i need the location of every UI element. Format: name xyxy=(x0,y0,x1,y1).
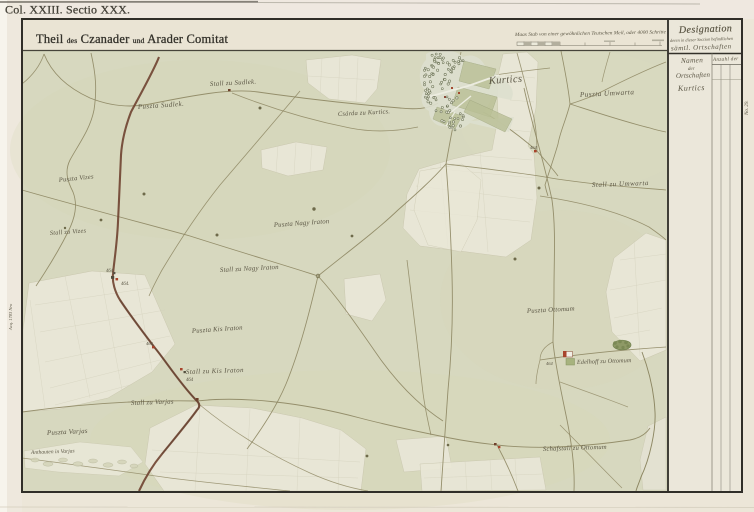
svg-text:464: 464 xyxy=(146,341,154,346)
svg-text:Theil des Czanader und Arader: Theil des Czanader und Arader Comitat xyxy=(36,32,229,46)
svg-text:464: 464 xyxy=(106,269,114,274)
svg-text:Col. XXIII. Sectio XXX.: Col. XXIII. Sectio XXX. xyxy=(5,3,130,17)
svg-text:Anzahl der: Anzahl der xyxy=(712,56,739,63)
svg-text:464: 464 xyxy=(530,145,538,150)
svg-text:Designation: Designation xyxy=(678,23,733,36)
svg-text:464: 464 xyxy=(546,361,554,366)
svg-text:Acq. 1783 Nro: Acq. 1783 Nro xyxy=(8,303,13,331)
svg-text:Namen: Namen xyxy=(680,55,704,65)
svg-text:Ortschaften: Ortschaften xyxy=(676,71,711,80)
svg-text:Kurtics: Kurtics xyxy=(677,83,705,93)
svg-text:Stall zu Varjas: Stall zu Varjas xyxy=(131,399,174,407)
svg-text:464.: 464. xyxy=(121,282,129,287)
svg-text:No. 29.: No. 29. xyxy=(745,100,750,116)
svg-text:464: 464 xyxy=(186,378,194,383)
